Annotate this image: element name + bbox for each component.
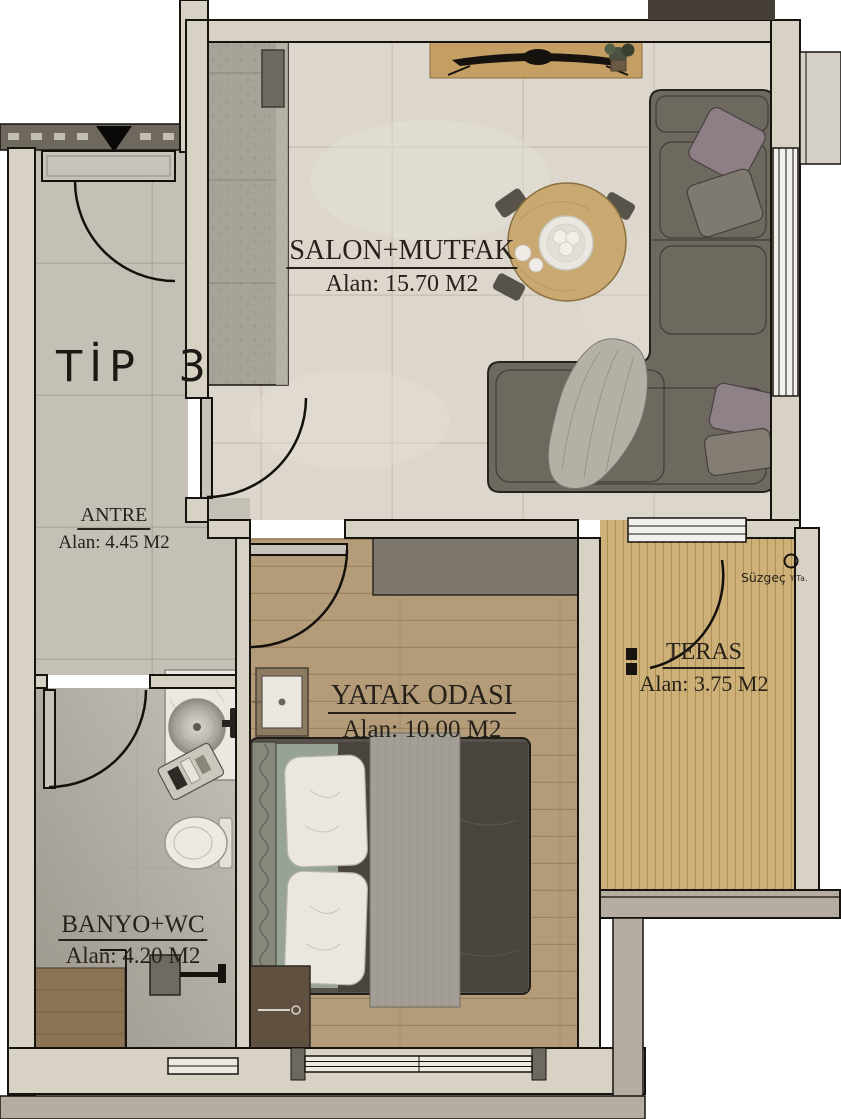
yatak-odasi-label: YATAK ODASI Alan: 10.00 M2: [328, 681, 516, 744]
wall-antre-bath-b: [150, 675, 236, 688]
antre-label: ANTRE Alan: 4.45 M2: [58, 505, 169, 554]
bedroom-window-jamb: [291, 1048, 305, 1080]
wall-salon-bottom-c: [746, 520, 800, 538]
teras-area: Alan: 3.75 M2: [640, 671, 769, 697]
teras-name: TERAS: [663, 640, 745, 669]
teras-label: TERAS Alan: 3.75 M2: [640, 640, 769, 697]
yatak-odasi-name: YATAK ODASI: [328, 681, 516, 714]
exterior-band-right: [613, 918, 643, 1119]
shower-arm: [180, 972, 220, 977]
nightstand-bottom: [250, 966, 310, 1052]
wall-salon-bottom-b: [345, 520, 578, 538]
wall-bedroom-left: [236, 538, 250, 1048]
tray-knob: [279, 699, 286, 706]
headboard-cushion: [252, 742, 276, 992]
salon-name: SALON+MUTFAK: [286, 236, 517, 269]
antre-area: Alan: 4.45 M2: [58, 532, 169, 554]
shower-head: [218, 964, 226, 983]
tv-console: [430, 42, 642, 78]
toilet: [165, 817, 232, 869]
wall-antre-bath-a: [35, 675, 47, 688]
exterior-band-bottom: [0, 1096, 645, 1119]
kitchen-sink: [262, 50, 284, 107]
bed-runner: [370, 733, 460, 1007]
wall-teras-right: [795, 528, 819, 918]
suzgec-text: Süzgeç: [741, 570, 786, 585]
banyo-label: BANYO+WC Alan: 4.20 M2: [58, 911, 207, 969]
wall-left-outer: [8, 148, 35, 1095]
wall-bedroom-teras: [578, 538, 600, 1048]
wall-top: [186, 20, 775, 42]
wardrobe: [373, 538, 578, 595]
wall-antre-salon-stub: [186, 498, 208, 522]
banyo-area: Alan: 4.20 M2: [58, 943, 207, 969]
bedroom-window-jamb: [532, 1048, 546, 1080]
kitchen-counter: [208, 42, 288, 385]
antre-name: ANTRE: [78, 505, 151, 530]
tv-stand: [523, 49, 553, 65]
salon-area: Alan: 15.70 M2: [286, 271, 517, 298]
suzgec-subtext: Y.Ta.: [790, 574, 808, 583]
suzgec-annotation: Süzgeç Y.Ta.: [741, 570, 808, 585]
neighbor-wall-band: [648, 0, 775, 20]
banyo-name: BANYO+WC: [58, 911, 207, 941]
sink-drain: [193, 723, 201, 731]
yatak-odasi-area: Alan: 10.00 M2: [328, 716, 516, 744]
teras-railing: [600, 890, 840, 918]
salon-label: SALON+MUTFAK Alan: 15.70 M2: [286, 236, 517, 298]
nightstand-top: [252, 668, 308, 736]
floor-plan: TİP 3 SALON+MUTFAK Alan: 15.70 M2 ANTRE …: [0, 0, 841, 1119]
cup: [529, 258, 543, 272]
plan-title: TİP 3: [56, 342, 213, 392]
salon-teras-window: [628, 518, 746, 542]
wall-salon-bottom-a: [208, 520, 250, 538]
